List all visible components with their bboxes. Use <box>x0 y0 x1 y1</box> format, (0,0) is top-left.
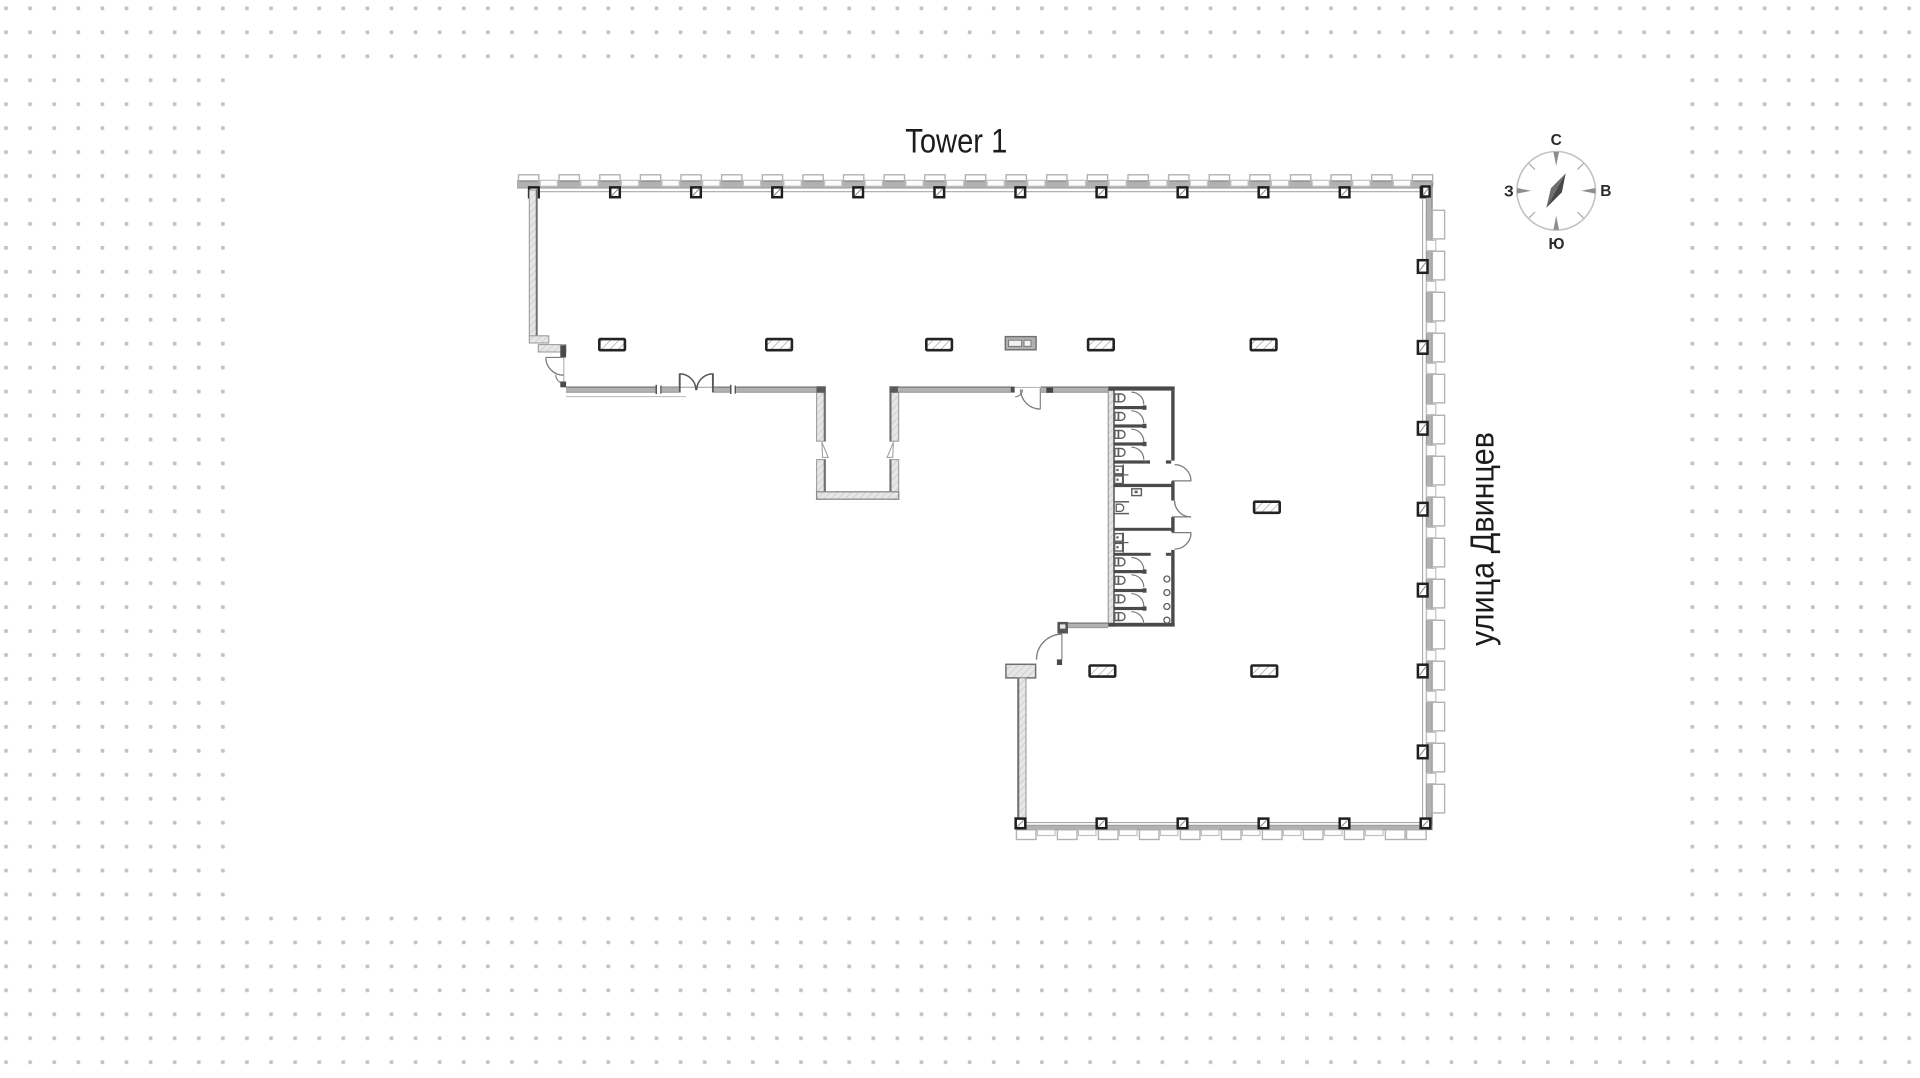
svg-text:улица Двинцев: улица Двинцев <box>1464 432 1501 646</box>
svg-text:В: В <box>1600 183 1611 200</box>
svg-text:З: З <box>1504 183 1514 200</box>
svg-text:Ю: Ю <box>1549 236 1565 253</box>
svg-text:С: С <box>1551 132 1562 149</box>
svg-text:Tower 1: Tower 1 <box>905 123 1007 161</box>
